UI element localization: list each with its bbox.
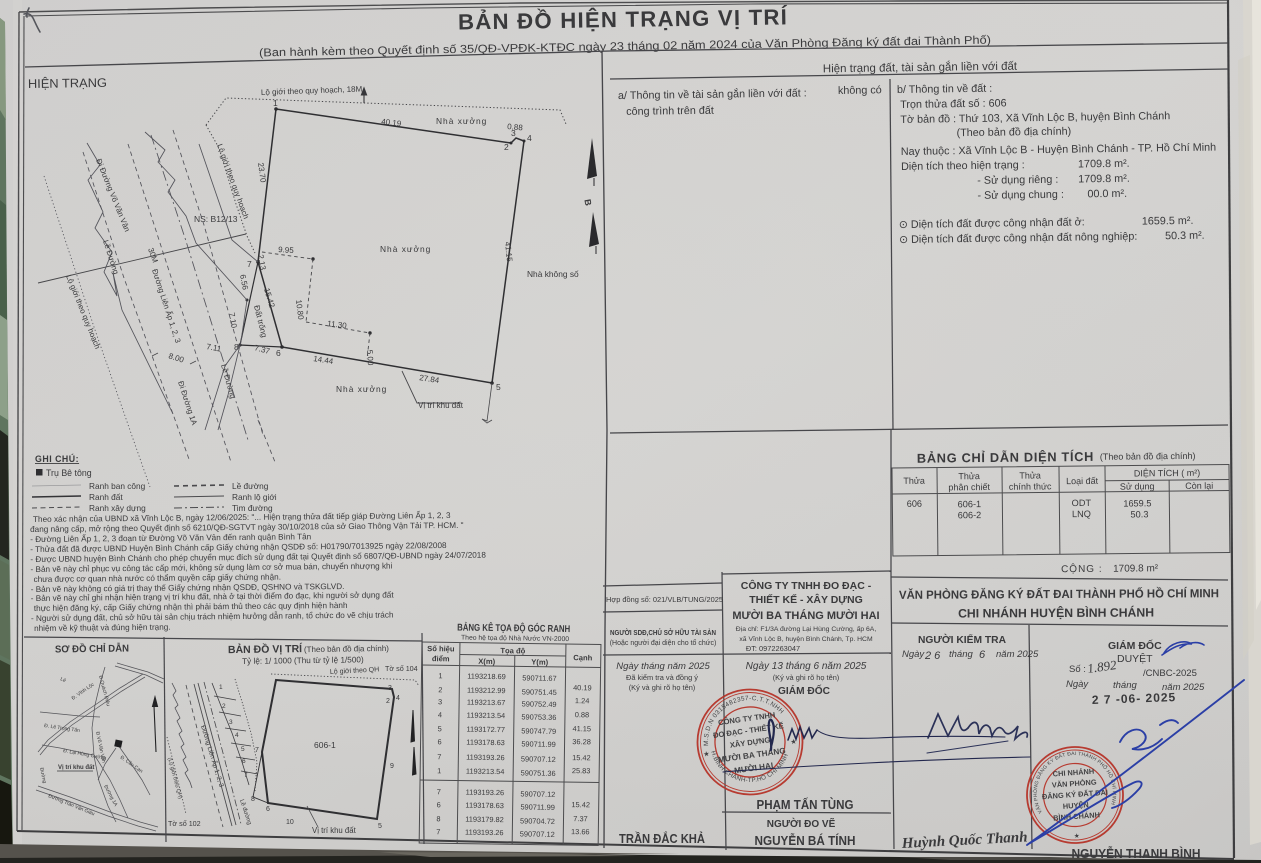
svg-text:(Theo bản đồ địa chính): (Theo bản đồ địa chính): [956, 126, 1071, 140]
svg-text:590747.79: 590747.79: [521, 726, 556, 735]
svg-text:0.88: 0.88: [507, 122, 524, 132]
svg-text:590707.12: 590707.12: [520, 789, 555, 798]
svg-text:Còn lại: Còn lại: [1185, 481, 1213, 491]
svg-text:Tờ số 102: Tờ số 102: [168, 819, 201, 828]
svg-text:5: 5: [241, 746, 245, 753]
svg-text:1193172.77: 1193172.77: [466, 725, 505, 735]
svg-text:Y(m): Y(m): [531, 658, 548, 667]
svg-text:ODT: ODT: [1072, 498, 1092, 508]
svg-text:b/ Thông tin về đất :: b/ Thông tin về đất :: [897, 83, 992, 96]
svg-text:(Theo bản đồ địa chính): (Theo bản đồ địa chính): [1100, 451, 1196, 462]
svg-text:6: 6: [979, 649, 986, 661]
svg-text:1: 1: [219, 684, 223, 691]
svg-text:590751.45: 590751.45: [522, 687, 557, 696]
svg-text:GHI CHÚ:: GHI CHÚ:: [35, 453, 79, 464]
svg-text:1193193.26: 1193193.26: [465, 828, 504, 838]
svg-text:Ngày: Ngày: [1066, 679, 1089, 690]
svg-text:NGUYỄN THANH BÌNH: NGUYỄN THANH BÌNH: [1072, 846, 1201, 861]
svg-text:VĂN PHÒNG ĐĂNG KÝ ĐẤT ĐAI THÀN: VĂN PHÒNG ĐĂNG KÝ ĐẤT ĐAI THÀNH PHỐ HỒ C…: [899, 586, 1219, 602]
svg-text:Ranh lộ giới: Ranh lộ giới: [232, 492, 277, 502]
svg-text:Thửa: Thửa: [1019, 470, 1041, 480]
svg-text:Số hiệu: Số hiệu: [427, 644, 455, 653]
svg-text:590704.72: 590704.72: [520, 816, 555, 825]
svg-text:(Ký và ghi rõ họ tên): (Ký và ghi rõ họ tên): [773, 673, 840, 682]
svg-text:1193212.99: 1193212.99: [467, 686, 506, 696]
svg-text:Trọn thửa đất số : 606: Trọn thửa đất số : 606: [900, 97, 1007, 110]
svg-text:phân chiết: phân chiết: [948, 482, 990, 492]
svg-text:Loại đất: Loại đất: [1066, 476, 1099, 486]
svg-text:Vị trí khu đất: Vị trí khu đất: [418, 401, 464, 410]
svg-text:Ngày: Ngày: [902, 649, 925, 660]
svg-text:- Sử dụng chung :: - Sử dụng chung :: [977, 189, 1064, 202]
svg-text:8: 8: [436, 814, 440, 823]
svg-text:DUYỆT: DUYỆT: [1117, 652, 1153, 665]
svg-text:(Ký và ghi rõ họ tên): (Ký và ghi rõ họ tên): [629, 683, 696, 692]
svg-text:công trình trên đất: công trình trên đất: [626, 105, 714, 118]
svg-text:10: 10: [286, 819, 294, 826]
svg-text:(Hoặc người đại diện cho tổ ch: (Hoặc người đại diện cho tổ chức): [610, 639, 717, 647]
svg-text:Vị trí khu đất: Vị trí khu đất: [58, 764, 94, 771]
svg-text:CÔNG TY TNHH ĐO ĐẠC -: CÔNG TY TNHH ĐO ĐẠC -: [741, 579, 872, 592]
svg-text:điểm: điểm: [432, 654, 450, 663]
svg-text:Số :: Số :: [1069, 664, 1086, 675]
svg-text:4: 4: [527, 133, 532, 143]
svg-text:1: 1: [438, 671, 442, 680]
svg-text:ĐT: 0972263047: ĐT: 0972263047: [746, 644, 800, 653]
svg-text:Hợp đồng số: 021/VLB/TUNG/2025: Hợp đồng số: 021/VLB/TUNG/2025: [606, 595, 723, 604]
svg-text:15.42: 15.42: [572, 753, 591, 762]
svg-text:Địa chỉ: F1/3A đường Lại Hùng: Địa chỉ: F1/3A đường Lại Hùng Cường, ấp …: [736, 624, 877, 633]
svg-text:606-1: 606-1: [958, 499, 982, 509]
svg-text:NGƯỜI KIỂM TRA: NGƯỜI KIỂM TRA: [918, 633, 1006, 646]
svg-text:Lề đường: Lề đường: [232, 481, 269, 491]
svg-text:1193213.54: 1193213.54: [467, 711, 506, 721]
svg-text:CỘNG :: CỘNG :: [1061, 562, 1103, 575]
svg-text:Thửa: Thửa: [903, 476, 925, 486]
svg-text:1709.8 m².: 1709.8 m².: [1078, 158, 1130, 171]
svg-text:6: 6: [437, 737, 441, 746]
svg-text:6: 6: [437, 800, 441, 809]
svg-text:Tọa độ: Tọa độ: [500, 646, 525, 655]
svg-text:5: 5: [438, 724, 442, 733]
svg-text:590711.99: 590711.99: [521, 739, 556, 748]
svg-text:Tim đường: Tim đường: [232, 503, 273, 513]
svg-text:5: 5: [496, 382, 501, 392]
svg-text:00.0 m².: 00.0 m².: [1087, 188, 1127, 201]
svg-text:1709.8 m².: 1709.8 m².: [1078, 173, 1130, 186]
svg-text:chính thức: chính thức: [1009, 481, 1052, 491]
svg-text:1193193.26: 1193193.26: [466, 753, 505, 763]
svg-text:7: 7: [437, 752, 441, 761]
svg-text:40.19: 40.19: [573, 683, 592, 692]
svg-text:/CNBC-2025: /CNBC-2025: [1143, 668, 1197, 679]
svg-text:3: 3: [438, 697, 442, 706]
svg-text:1709.8 m²: 1709.8 m²: [1113, 563, 1159, 574]
svg-text:Cạnh: Cạnh: [573, 653, 592, 662]
svg-text:Thửa: Thửa: [958, 471, 980, 481]
svg-text:Diện tích theo hiện trạng :: Diện tích theo hiện trạng :: [901, 159, 1025, 173]
svg-text:2 7 -06- 2025: 2 7 -06- 2025: [1092, 690, 1177, 707]
svg-text:Ranh xây dựng: Ranh xây dựng: [89, 503, 146, 513]
svg-text:1193178.63: 1193178.63: [466, 738, 505, 748]
svg-text:7.37: 7.37: [573, 814, 588, 823]
svg-text:HIỆN TRẠNG: HIỆN TRẠNG: [28, 75, 107, 91]
svg-text:năm 2025: năm 2025: [996, 649, 1039, 660]
svg-text:7: 7: [436, 827, 440, 836]
svg-text:590711.67: 590711.67: [522, 673, 557, 682]
svg-text:- Sử dụng riêng :: - Sử dụng riêng :: [977, 174, 1058, 187]
svg-text:606-1: 606-1: [314, 740, 336, 750]
svg-text:NGUYỄN BÁ TÍNH: NGUYỄN BÁ TÍNH: [755, 833, 856, 848]
svg-text:2: 2: [438, 685, 442, 694]
svg-text:TRẦN ĐẮC KHẢ: TRẦN ĐẮC KHẢ: [619, 831, 705, 846]
svg-text:1193179.82: 1193179.82: [465, 815, 504, 825]
svg-text:Nhà không số: Nhà không số: [527, 269, 579, 279]
svg-text:NGƯỜI ĐO VẼ: NGƯỜI ĐO VẼ: [767, 817, 836, 830]
svg-text:7: 7: [244, 772, 248, 779]
svg-text:36.28: 36.28: [572, 737, 591, 746]
svg-text:590751.36: 590751.36: [521, 768, 556, 777]
svg-text:3: 3: [229, 719, 233, 726]
svg-text:không có: không có: [838, 84, 882, 97]
svg-text:590752.49: 590752.49: [522, 699, 557, 708]
svg-text:1: 1: [437, 766, 441, 775]
svg-text:a/ Thông tin về tài sản gắn li: a/ Thông tin về tài sản gắn liền với đất…: [618, 86, 807, 102]
svg-text:1659.5 m².: 1659.5 m².: [1142, 215, 1194, 228]
svg-text:7: 7: [255, 747, 259, 754]
svg-text:BẢNG KÊ TỌA ĐỘ GÓC RANH: BẢNG KÊ TỌA ĐỘ GÓC RANH: [457, 621, 570, 635]
svg-text:25.83: 25.83: [572, 766, 591, 775]
svg-text:9.95: 9.95: [278, 245, 295, 255]
svg-text:Tỷ lệ: 1/ 1000 (Thu từ tỷ lệ: Tỷ lệ: 1/ 1000 (Thu từ tỷ lệ 1/500): [242, 655, 364, 666]
svg-text:4: 4: [235, 732, 239, 739]
svg-text:GIÁM ĐỐC: GIÁM ĐỐC: [1108, 638, 1162, 652]
svg-text:2: 2: [222, 703, 226, 710]
svg-text:1: 1: [273, 98, 278, 108]
svg-text:BẢNG CHỈ DẪN DIỆN TÍCH: BẢNG CHỈ DẪN DIỆN TÍCH: [917, 449, 1094, 466]
svg-text:590753.36: 590753.36: [521, 712, 556, 721]
svg-text:Nhà xưởng: Nhà xưởng: [436, 116, 487, 126]
svg-text:6: 6: [276, 348, 281, 358]
svg-text:9: 9: [390, 763, 394, 770]
svg-text:2 6: 2 6: [924, 650, 941, 662]
svg-text:50.3: 50.3: [1130, 509, 1148, 519]
svg-text:MƯỜI BA THÁNG MƯỜI HAI: MƯỜI BA THÁNG MƯỜI HAI: [732, 609, 879, 622]
svg-text:4: 4: [438, 710, 442, 719]
svg-text:8: 8: [251, 796, 255, 803]
svg-text:606: 606: [907, 499, 922, 509]
svg-text:Vị trí khu đất: Vị trí khu đất: [312, 826, 357, 835]
svg-text:LNQ: LNQ: [1072, 509, 1091, 519]
svg-text:5: 5: [378, 823, 382, 830]
svg-text:41.15: 41.15: [572, 724, 591, 733]
svg-text:GIÁM ĐỐC: GIÁM ĐỐC: [778, 683, 830, 697]
svg-text:1193178.63: 1193178.63: [465, 801, 504, 811]
svg-text:Nhà xưởng: Nhà xưởng: [380, 244, 431, 254]
svg-text:13.66: 13.66: [571, 827, 590, 836]
svg-text:4: 4: [396, 695, 400, 702]
svg-text:X(m): X(m): [478, 657, 495, 666]
svg-text:THIẾT KẾ - XÂY DỰNG: THIẾT KẾ - XÂY DỰNG: [749, 593, 863, 606]
svg-text:590707.12: 590707.12: [521, 754, 556, 763]
svg-text:Sử dụng: Sử dụng: [1120, 481, 1155, 491]
svg-text:1659.5: 1659.5: [1123, 498, 1151, 508]
svg-text:★: ★: [703, 750, 710, 759]
svg-text:Ranh ban công: Ranh ban công: [89, 481, 146, 491]
svg-text:PHẠM TẤN TÙNG: PHẠM TẤN TÙNG: [757, 797, 854, 812]
svg-text:DIỆN TÍCH ( m²): DIỆN TÍCH ( m²): [1134, 468, 1200, 479]
svg-text:590707.12: 590707.12: [520, 829, 555, 838]
svg-text:CHI NHÁNH HUYỆN BÌNH CHÁNH: CHI NHÁNH HUYỆN BÌNH CHÁNH: [958, 605, 1154, 621]
svg-text:2: 2: [386, 698, 390, 705]
svg-text:7: 7: [247, 259, 252, 269]
svg-text:Trụ Bê tông: Trụ Bê tông: [46, 468, 92, 478]
svg-text:Tờ số 104: Tờ số 104: [385, 664, 418, 673]
svg-text:6: 6: [266, 806, 270, 813]
svg-text:15.42: 15.42: [571, 800, 590, 809]
svg-text:606-2: 606-2: [958, 510, 982, 520]
svg-text:(Theo bản đồ địa chính): (Theo bản đồ địa chính): [304, 644, 389, 654]
svg-text:SƠ ĐỒ CHỈ DẪN: SƠ ĐỒ CHỈ DẪN: [55, 641, 129, 655]
svg-text:nhiệm về kỹ thuật và đúng hiện: nhiệm về kỹ thuật và đúng hiện trạng.: [34, 623, 171, 633]
svg-text:7: 7: [437, 787, 441, 796]
svg-text:3: 3: [388, 685, 392, 692]
svg-text:1.24: 1.24: [575, 696, 590, 705]
svg-text:Đã kiểm tra và đồng ý: Đã kiểm tra và đồng ý: [626, 673, 698, 682]
svg-text:BẢN ĐỒ VỊ TRÍ: BẢN ĐỒ VỊ TRÍ: [228, 642, 303, 656]
svg-text:1193213.67: 1193213.67: [467, 698, 506, 708]
svg-text:NGƯỜI SDĐ,CHỦ SỞ HỮU TÀI SẢN: NGƯỜI SDĐ,CHỦ SỞ HỮU TÀI SẢN: [610, 628, 716, 637]
svg-text:Ranh đất: Ranh đất: [89, 492, 123, 502]
svg-text:2: 2: [504, 142, 509, 152]
svg-text:Ngày 13 tháng 6 năm 2025: Ngày 13 tháng 6 năm 2025: [746, 661, 867, 672]
svg-text:tháng: tháng: [949, 649, 973, 660]
svg-text:★: ★: [1074, 832, 1081, 840]
svg-text:tháng: tháng: [1113, 680, 1137, 691]
svg-text:BẢN ĐỒ HIỆN TRẠNG VỊ TRÍ: BẢN ĐỒ HIỆN TRẠNG VỊ TRÍ: [458, 4, 788, 34]
svg-text:0.88: 0.88: [575, 710, 590, 719]
svg-text:xã Vĩnh Lộc B, huyện Bình Chán: xã Vĩnh Lộc B, huyện Bình Chánh, Tp. HCM: [739, 636, 873, 643]
svg-text:Nhà xưởng: Nhà xưởng: [336, 384, 387, 394]
svg-text:50.3 m².: 50.3 m².: [1165, 230, 1205, 243]
svg-text:1193193.26: 1193193.26: [466, 788, 505, 798]
svg-text:6: 6: [242, 758, 246, 765]
svg-text:Ngày tháng năm 2025: Ngày tháng năm 2025: [616, 661, 710, 672]
svg-text:1193213.54: 1193213.54: [466, 767, 505, 777]
svg-text:5.00: 5.00: [365, 350, 375, 367]
svg-text:1193218.69: 1193218.69: [467, 672, 506, 682]
svg-text:590711.99: 590711.99: [520, 802, 555, 811]
